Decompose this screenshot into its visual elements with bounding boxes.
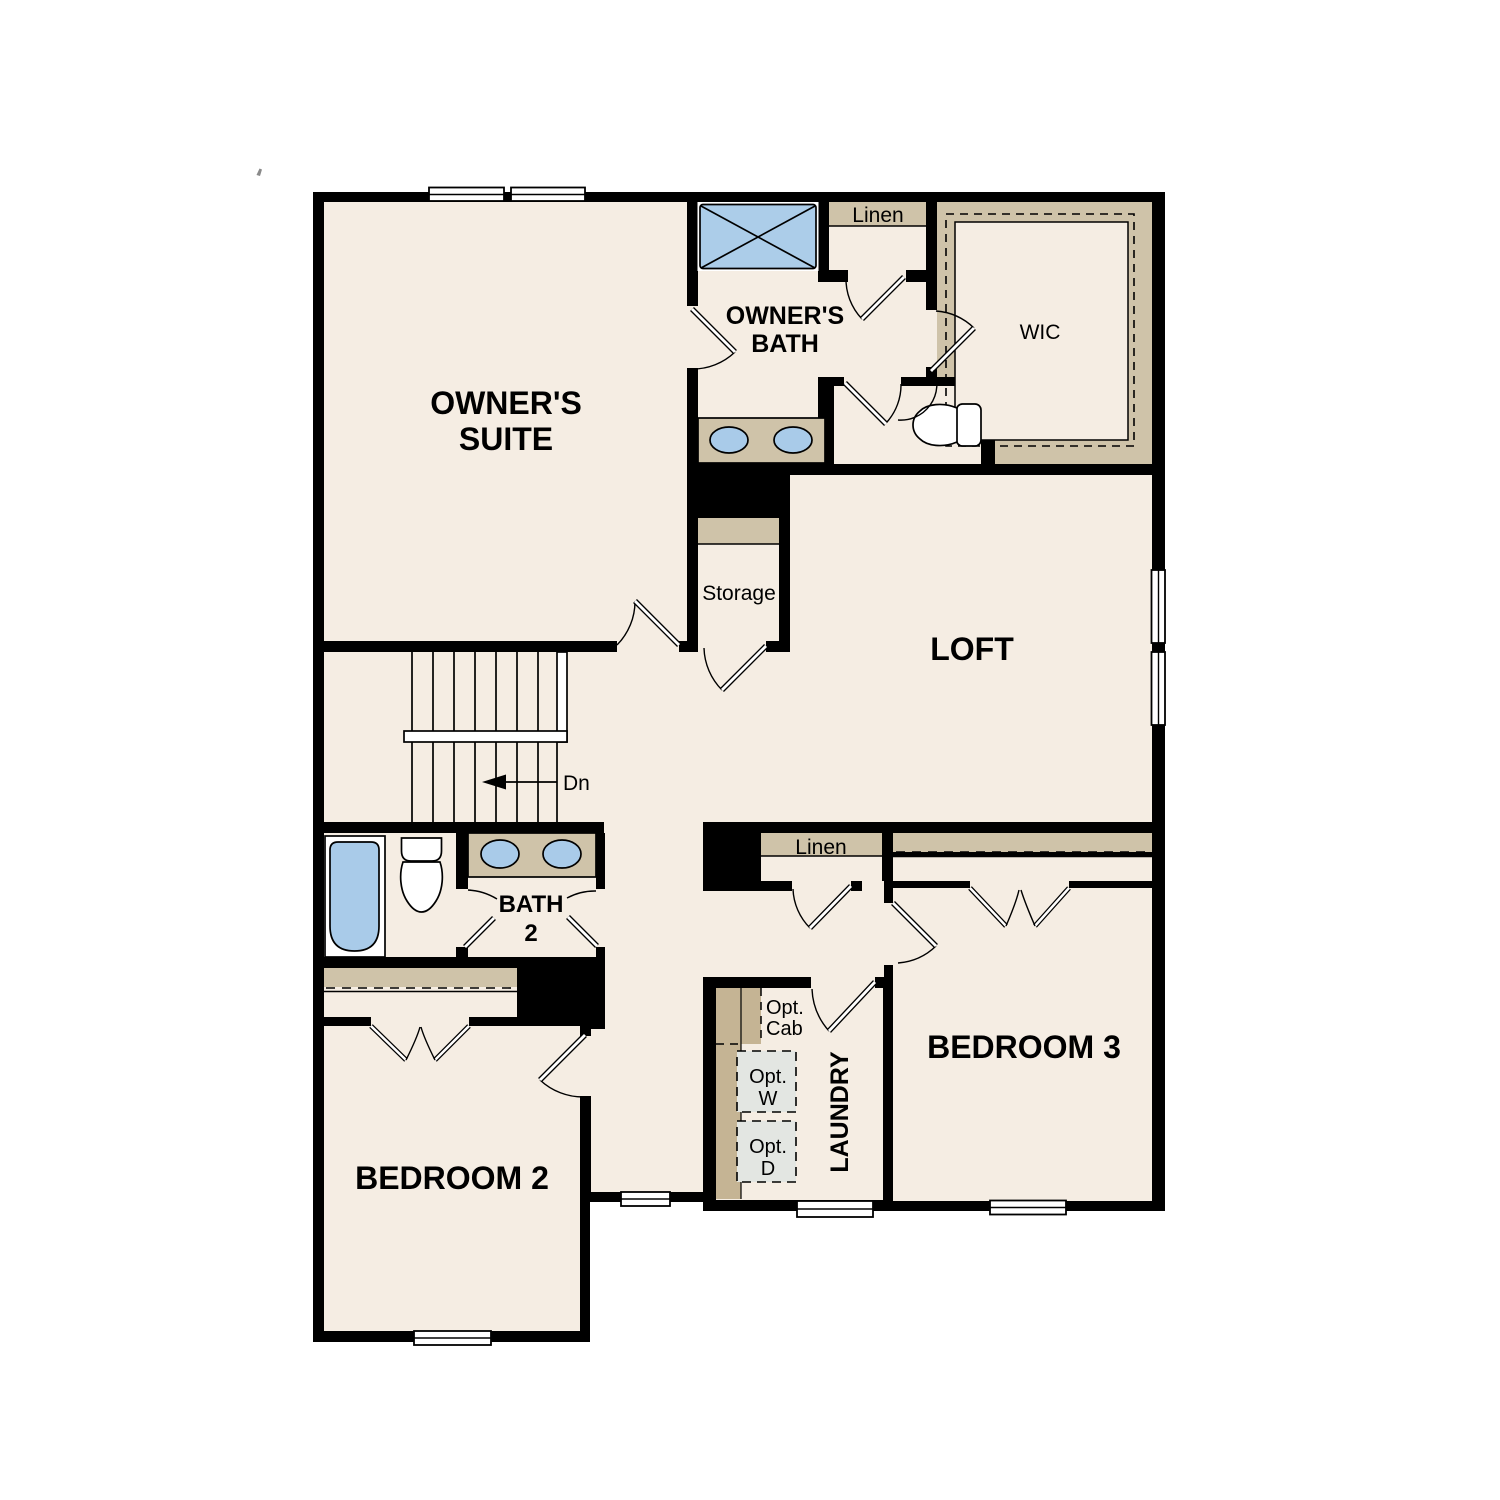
svg-text:LAUNDRY: LAUNDRY [826,1051,854,1173]
svg-text:BATH: BATH [751,330,819,358]
svg-text:BATH: BATH [499,891,564,918]
svg-text:BEDROOM 3: BEDROOM 3 [927,1029,1121,1065]
svg-text:LOFT: LOFT [930,631,1014,667]
svg-text:2: 2 [524,920,537,947]
svg-text:Linen: Linen [852,204,903,227]
svg-text:OWNER'S: OWNER'S [726,302,844,330]
svg-text:BEDROOM 2: BEDROOM 2 [355,1160,549,1196]
svg-text:D: D [761,1158,775,1180]
svg-text:SUITE: SUITE [459,421,553,457]
svg-text:Linen: Linen [795,836,846,859]
svg-text:WIC: WIC [1020,321,1061,344]
svg-text:Dn: Dn [563,772,590,795]
svg-text:Cab: Cab [766,1018,803,1040]
svg-text:Storage: Storage [702,582,776,605]
svg-text:W: W [759,1088,778,1110]
svg-text:OWNER'S: OWNER'S [430,385,582,421]
svg-text:Opt.: Opt. [749,1136,787,1158]
svg-text:Opt.: Opt. [766,997,804,1019]
svg-text:Opt.: Opt. [749,1066,787,1088]
